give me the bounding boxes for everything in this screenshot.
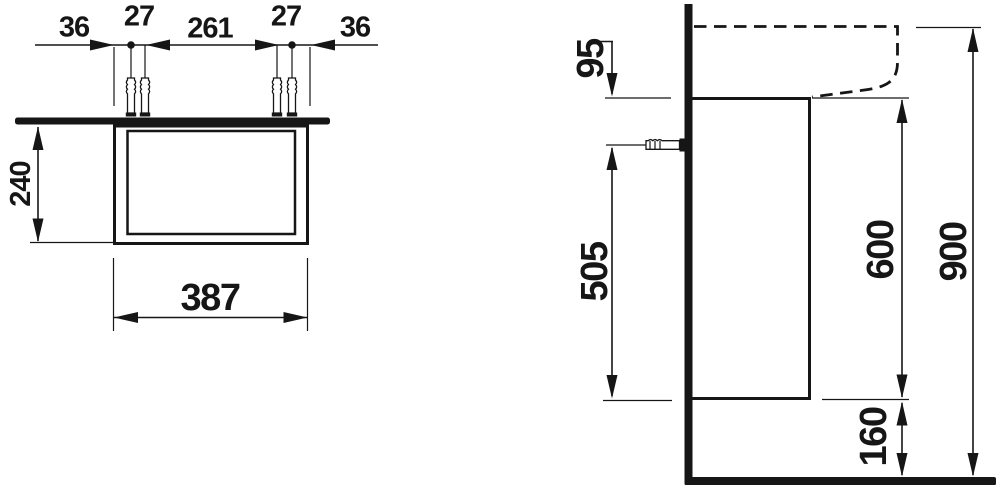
arrowhead-down-icon (33, 219, 44, 243)
arrowhead-right-icon (284, 312, 308, 323)
arrowhead-up-icon (968, 28, 979, 52)
dim-label-rim-offset: 95 (570, 38, 612, 79)
arrowhead-up-icon (897, 99, 908, 123)
wall-anchor-icon (606, 139, 685, 152)
arrowhead-left-icon (146, 40, 170, 51)
wall-anchor-icon (287, 78, 297, 117)
dim-label-width: 387 (181, 277, 240, 319)
height-dimension: 240 (5, 127, 114, 243)
dim-label-height: 240 (5, 161, 37, 206)
overall-height-dimension: 900 (916, 28, 981, 477)
dim-label-offset-left: 36 (59, 12, 90, 44)
dim-label-anchor-height: 505 (574, 241, 616, 301)
cabinet-height-dimension: 600 (812, 98, 909, 400)
width-dimension: 387 (114, 258, 308, 331)
wall-anchor-icon (140, 78, 150, 117)
side-view: 95 505 600 (570, 4, 996, 485)
arrowhead-left-icon (114, 312, 138, 323)
arrowhead-right-icon (90, 40, 114, 51)
arrowhead-up-icon (607, 147, 618, 171)
arrowhead-down-icon (968, 453, 979, 477)
arrowhead-up-icon (897, 402, 908, 426)
arrowhead-down-icon (897, 375, 908, 399)
rim-offset-dimension: 95 (570, 38, 671, 98)
arrowhead-down-icon (607, 375, 618, 399)
wall (685, 4, 693, 481)
dim-label-floor-clearance: 160 (853, 407, 895, 466)
front-view: 36 27 261 27 36 240 (5, 1, 378, 332)
wall-anchor-icon (126, 78, 136, 117)
top-dimension-chain: 36 27 261 27 36 (35, 1, 378, 111)
arrowhead-down-icon (897, 453, 908, 477)
technical-drawing: 36 27 261 27 36 240 (0, 0, 1000, 485)
dim-label-cabinet-height: 600 (860, 220, 902, 279)
floor (685, 477, 997, 485)
cabinet-side-profile (693, 99, 810, 399)
cabinet-front-inner-frame (128, 131, 296, 234)
cabinet-front-outline (115, 126, 308, 244)
wall-anchor-icon (272, 78, 282, 117)
washbasin-outline (694, 27, 898, 98)
dim-label-span: 261 (187, 13, 233, 45)
countertop (15, 118, 330, 125)
dim-label-pitch-left: 27 (124, 1, 154, 33)
arrowhead-right-icon (255, 40, 279, 51)
dim-label-offset-right: 36 (340, 12, 371, 44)
floor-clearance-dimension: 160 (853, 402, 908, 477)
arrowhead-left-icon (311, 40, 335, 51)
anchor-height-dimension: 505 (574, 147, 672, 401)
arrowhead-up-icon (33, 127, 44, 151)
dim-label-pitch-right: 27 (271, 1, 301, 33)
dim-label-overall-height: 900 (933, 222, 975, 281)
